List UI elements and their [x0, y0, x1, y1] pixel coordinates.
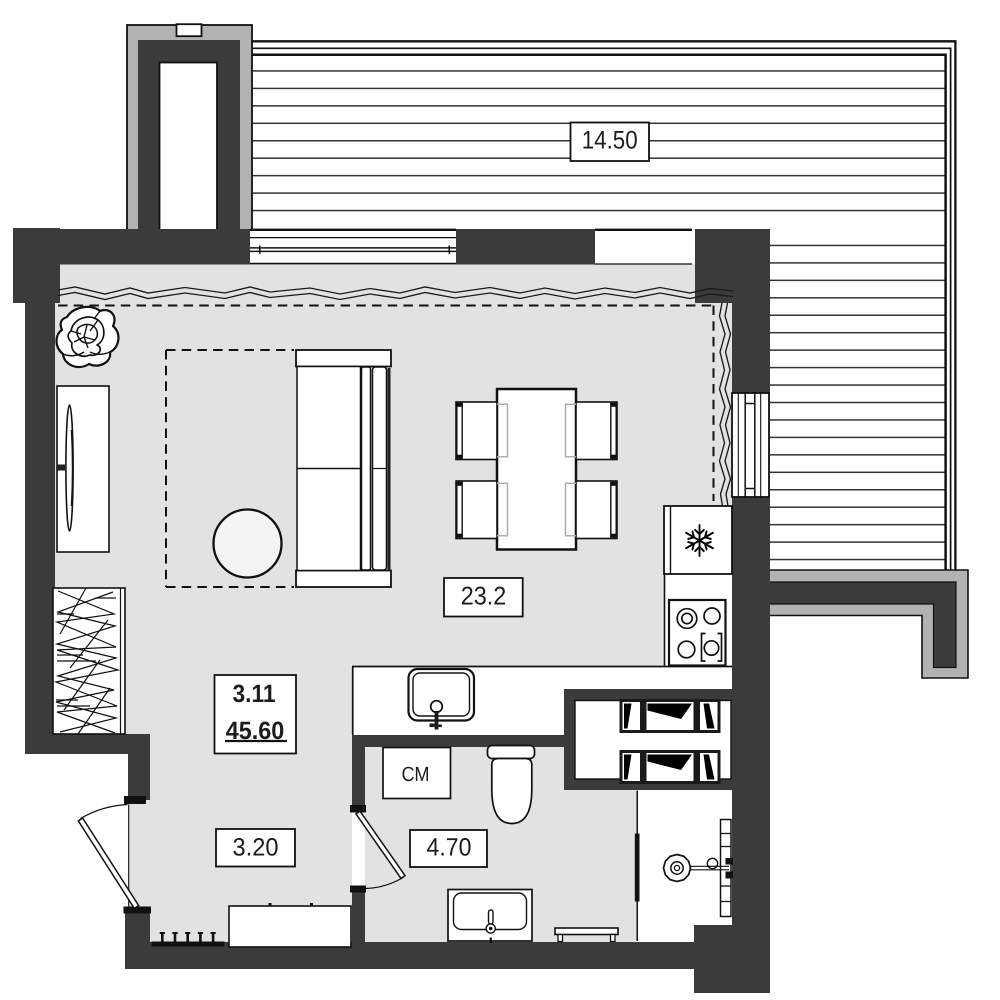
svg-text:3.20: 3.20 — [233, 834, 279, 862]
svg-text:СМ: СМ — [402, 763, 430, 786]
svg-text:4.70: 4.70 — [427, 834, 472, 862]
svg-text:14.50: 14.50 — [582, 127, 638, 155]
svg-text:3.11: 3.11 — [233, 680, 276, 708]
svg-text:23.2: 23.2 — [461, 583, 507, 611]
